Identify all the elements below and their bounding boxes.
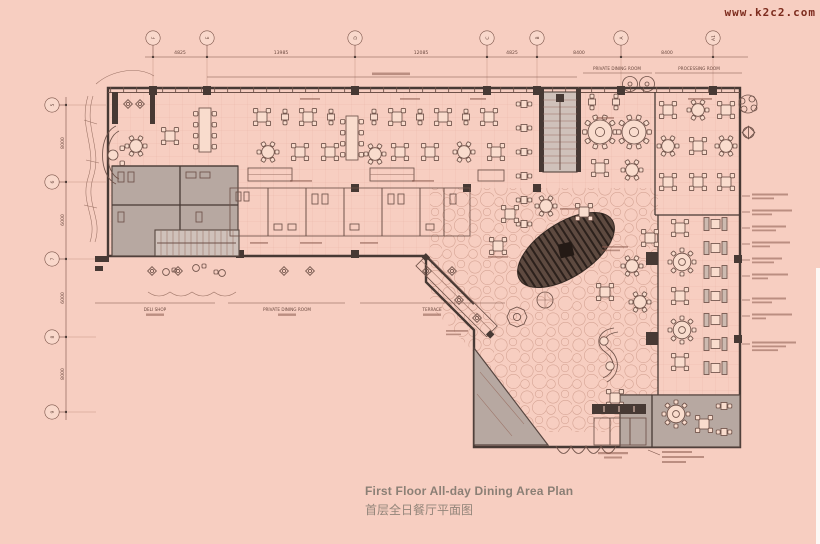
grid-left-bubble-labels: 5 6 7 8 9 (50, 103, 56, 413)
sheet-title-chinese: 首层全日餐厅平面图 (365, 501, 473, 518)
grid-bubble-label: A1 (711, 35, 717, 41)
grid-bubble-label: F (151, 36, 157, 39)
grid-top: F E D C B A A1 4825 13985 12085 4825 840… (145, 31, 748, 92)
grid-bubble-label: 7 (50, 257, 56, 260)
room-label-processing: PROCESSING ROOM (678, 66, 720, 71)
dimension-label: 8400 (661, 50, 673, 56)
stair-core (539, 88, 581, 172)
grid-bubble-label: 8 (50, 335, 56, 338)
grid-bubble-label: 9 (50, 410, 56, 413)
dimension-label: 6000 (60, 292, 66, 304)
dimension-label: 8000 (60, 137, 66, 149)
watermark-url: www.k2c2.com (725, 6, 816, 19)
room-label-terrace: TERRACE (421, 307, 442, 312)
grid-top-dimensions: 4825 13985 12085 4825 8400 8400 (174, 50, 673, 56)
north-arrow-icon (742, 126, 755, 139)
room-label-private-dining-2: PRIVATE DINING ROOM (263, 307, 311, 312)
tree-icon (739, 95, 757, 113)
grid-bubble-label: B (535, 36, 541, 39)
dimension-label: 8000 (60, 368, 66, 380)
scan-edge-strip (816, 268, 820, 544)
floor-plan-drawing: F E D C B A A1 4825 13985 12085 4825 840… (0, 0, 820, 544)
dimension-label: 12085 (414, 50, 429, 56)
dimension-label: 4825 (506, 50, 518, 56)
boh-block-left (112, 166, 239, 256)
terrace (95, 256, 236, 296)
grid-bubble-label: C (485, 36, 491, 39)
stair-left (155, 230, 239, 256)
dimension-label: 4825 (174, 50, 186, 56)
grid-bubble-label: 5 (50, 103, 56, 106)
room-label-private-dining: PRIVATE DINING ROOM (593, 66, 641, 71)
dimension-label: 6000 (60, 214, 66, 226)
sheet-title-english: First Floor All-day Dining Area Plan (365, 484, 573, 498)
dimension-label: 8400 (573, 50, 585, 56)
right-callouts (739, 95, 796, 351)
grid-bubble-label: D (353, 36, 359, 40)
bottom-right-room (620, 395, 740, 447)
grid-bubble-label: E (205, 36, 211, 39)
building: DELI SHOP PRIVATE DINING ROOM TERRACE (84, 70, 742, 463)
room-label-deli-shop: DELI SHOP (144, 307, 167, 312)
drawing-sheet: F E D C B A A1 4825 13985 12085 4825 840… (0, 0, 820, 544)
dimension-label: 13985 (274, 50, 289, 56)
grid-bubble-label: 6 (50, 180, 56, 183)
grid-top-bubble-labels: F E D C B A A1 (151, 35, 717, 41)
